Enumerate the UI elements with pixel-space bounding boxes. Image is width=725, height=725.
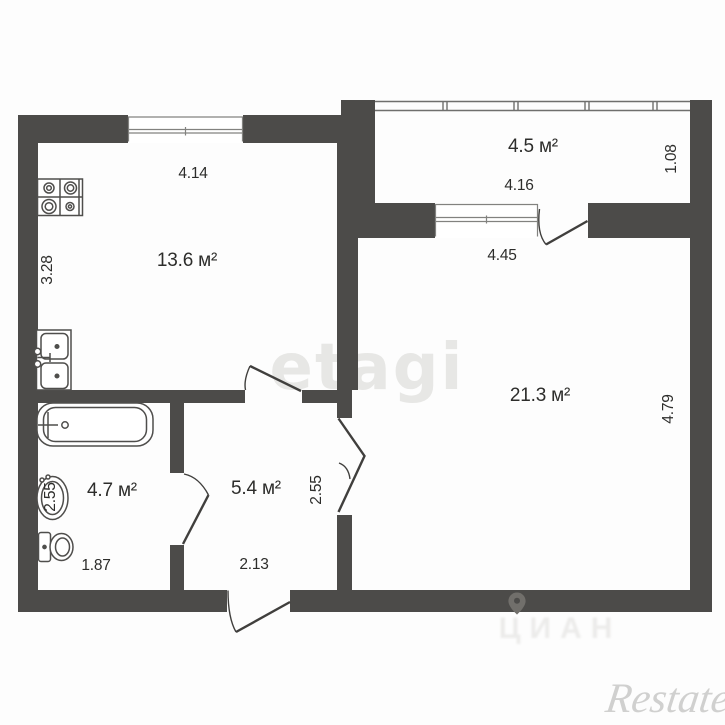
plan-linework	[0, 0, 725, 725]
kitchen-sink-icon	[34, 330, 71, 390]
bathroom-width-dim: 1.87	[81, 557, 110, 575]
bathroom-door	[183, 474, 209, 544]
kitchen-depth-dim: 3.28	[39, 255, 57, 284]
balcony-window-lines	[436, 205, 538, 237]
hallway-width-dim: 2.13	[239, 556, 268, 574]
living-room-area-label: 21.3 м²	[510, 385, 570, 407]
balcony-door	[539, 209, 588, 245]
living-room-width-dim: 4.45	[487, 247, 516, 265]
toilet-icon	[39, 533, 74, 562]
balcony-width-dim: 4.16	[504, 177, 533, 195]
entrance-door	[228, 591, 290, 633]
balcony-depth-dim: 1.08	[663, 144, 681, 173]
map-pin-icon	[508, 593, 525, 615]
kitchen-window-lines	[129, 117, 243, 142]
bathtub-icon	[37, 403, 153, 446]
hallway-depth-dim: 2.55	[308, 475, 326, 504]
kitchen-width-dim: 4.14	[178, 165, 207, 183]
balcony-glazing	[375, 102, 690, 111]
floor-plan: etagi ЦИАН Restate	[0, 0, 725, 725]
bathroom-area-label: 4.7 м²	[87, 480, 137, 502]
bathroom-depth-dim: 2.55	[42, 482, 60, 511]
hallway-area-label: 5.4 м²	[231, 478, 281, 500]
stove-icon	[38, 179, 83, 216]
balcony-area-label: 4.5 м²	[508, 136, 558, 158]
hall-living-door	[339, 419, 365, 513]
living-room-depth-dim: 4.79	[660, 394, 678, 423]
kitchen-area-label: 13.6 м²	[157, 250, 217, 272]
kitchen-hall-door	[245, 366, 301, 391]
